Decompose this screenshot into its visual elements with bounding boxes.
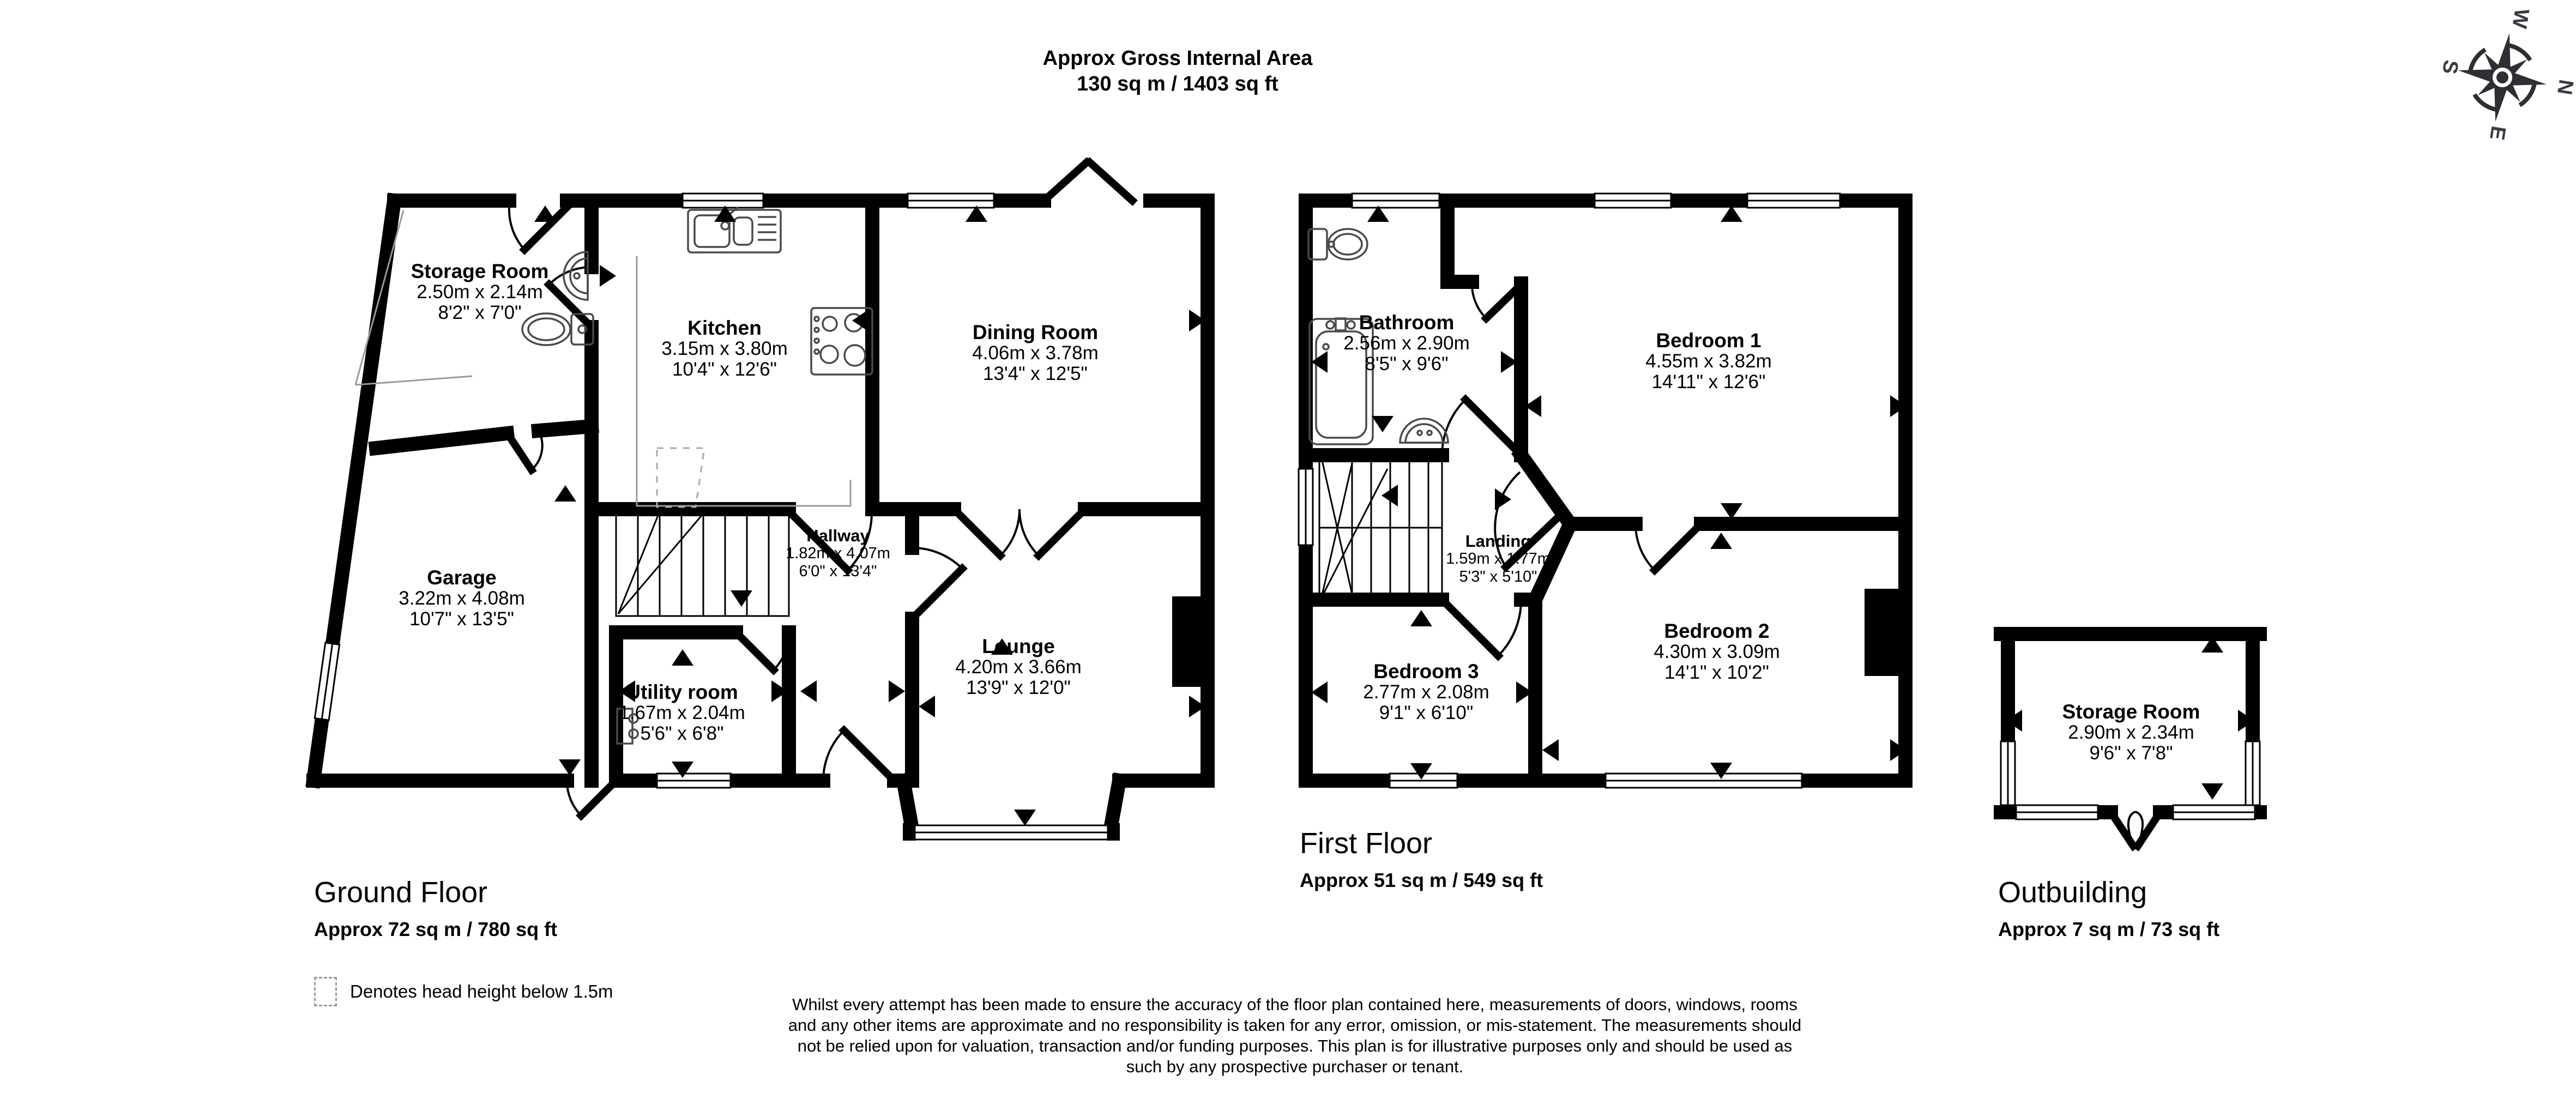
ground-floor-name: Ground Floor bbox=[314, 877, 557, 908]
title-line2: 130 sq m / 1403 sq ft bbox=[905, 71, 1450, 97]
ground-floor-area: Approx 72 sq m / 780 sq ft bbox=[314, 918, 557, 941]
room-label-bedroom1: Bedroom 1 4.55m x 3.82m 14'11" x 12'6" bbox=[1645, 330, 1772, 392]
compass-rose: N E S W bbox=[2438, 7, 2576, 142]
outbuilding-doors bbox=[2111, 812, 2160, 846]
compass-n: N bbox=[2553, 78, 2576, 96]
floorplan-page: N E S W Approx Gross Internal Area 130 s… bbox=[0, 0, 2576, 1099]
title-line1: Approx Gross Internal Area bbox=[905, 46, 1450, 71]
room-label-dining: Dining Room 4.06m x 3.78m 13'4" x 12'5" bbox=[972, 322, 1099, 384]
room-label-storage-ob: Storage Room 2.90m x 2.34m 9'6" x 7'8" bbox=[2062, 701, 2200, 764]
disclaimer-text: Whilst every attempt has been made to en… bbox=[780, 994, 1810, 1077]
room-label-bathroom: Bathroom 2.56m x 2.90m 8'5" x 9'6" bbox=[1343, 312, 1470, 375]
outbuilding-caption: Outbuilding Approx 7 sq m / 73 sq ft bbox=[1998, 877, 2219, 941]
first-floor-stairs bbox=[1319, 455, 1442, 600]
room-label-lounge: Lounge 4.20m x 3.66m 13'9" x 12'0" bbox=[955, 636, 1082, 698]
head-height-legend-icon bbox=[314, 977, 337, 1006]
compass-w: W bbox=[2507, 7, 2533, 30]
first-floor-name: First Floor bbox=[1300, 828, 1543, 859]
room-label-bedroom2: Bedroom 2 4.30m x 3.09m 14'1" x 10'2" bbox=[1654, 620, 1780, 683]
ground-floor-stairs bbox=[616, 509, 789, 616]
room-label-hallway: Hallway 1.82m x 4.07m 6'0" x 13'4" bbox=[786, 527, 890, 581]
room-label-landing: Landing 1.59m x 1.77m 5'3" x 5'10" bbox=[1446, 532, 1551, 586]
room-label-storage-gf: Storage Room 2.50m x 2.14m 8'2" x 7'0" bbox=[411, 261, 549, 323]
first-floor-caption: First Floor Approx 51 sq m / 549 sq ft bbox=[1300, 828, 1543, 892]
compass-s: S bbox=[2438, 58, 2462, 76]
room-label-garage: Garage 3.22m x 4.08m 10'7" x 13'5" bbox=[399, 567, 525, 630]
compass-e: E bbox=[2485, 124, 2509, 142]
room-label-utility: Utility room 1.67m x 2.04m 5'6" x 6'8" bbox=[619, 681, 745, 744]
ground-floor-caption: Ground Floor Approx 72 sq m / 780 sq ft bbox=[314, 877, 557, 941]
room-label-kitchen: Kitchen 3.15m x 3.80m 10'4" x 12'6" bbox=[661, 317, 788, 380]
room-label-bedroom3: Bedroom 3 2.77m x 2.08m 9'1" x 6'10" bbox=[1363, 661, 1489, 723]
title-block: Approx Gross Internal Area 130 sq m / 14… bbox=[905, 46, 1450, 97]
first-floor-area: Approx 51 sq m / 549 sq ft bbox=[1300, 869, 1543, 892]
outbuilding-name: Outbuilding bbox=[1998, 877, 2219, 908]
outbuilding-area: Approx 7 sq m / 73 sq ft bbox=[1998, 918, 2219, 941]
head-height-legend-text: Denotes head height below 1.5m bbox=[350, 981, 613, 1002]
